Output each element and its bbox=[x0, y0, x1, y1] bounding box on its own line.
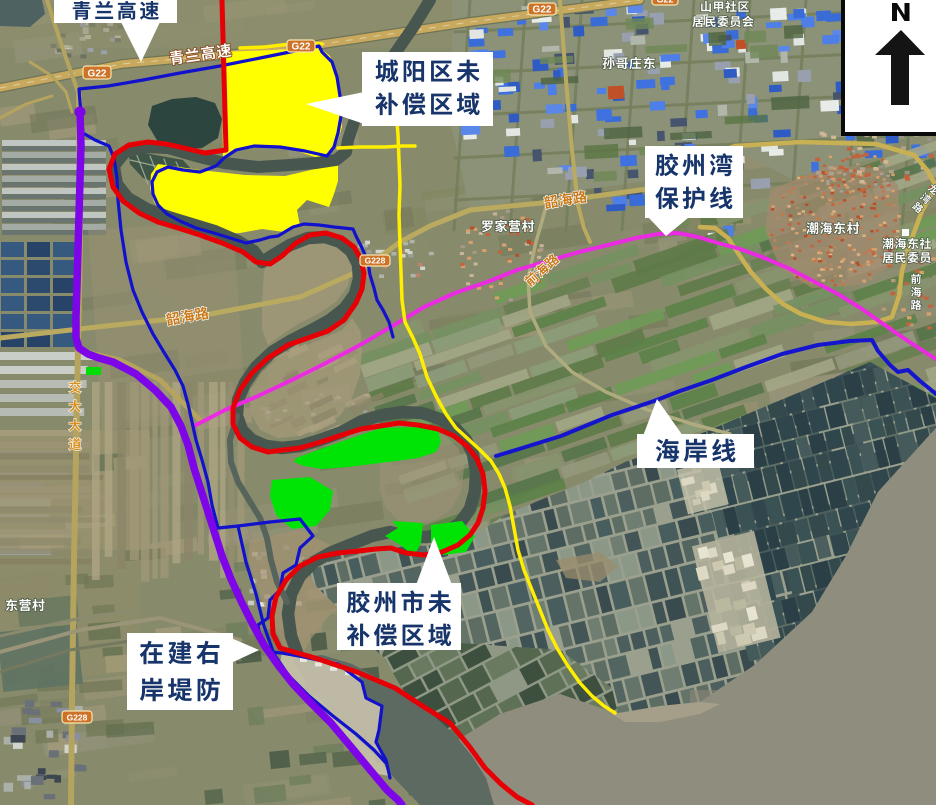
svg-text:G228: G228 bbox=[365, 256, 386, 266]
svg-text:G22: G22 bbox=[533, 5, 552, 16]
svg-text:G228: G228 bbox=[67, 713, 88, 723]
svg-text:G22: G22 bbox=[656, 0, 673, 5]
svg-text:G22: G22 bbox=[88, 69, 107, 80]
svg-text:G22: G22 bbox=[292, 42, 311, 53]
